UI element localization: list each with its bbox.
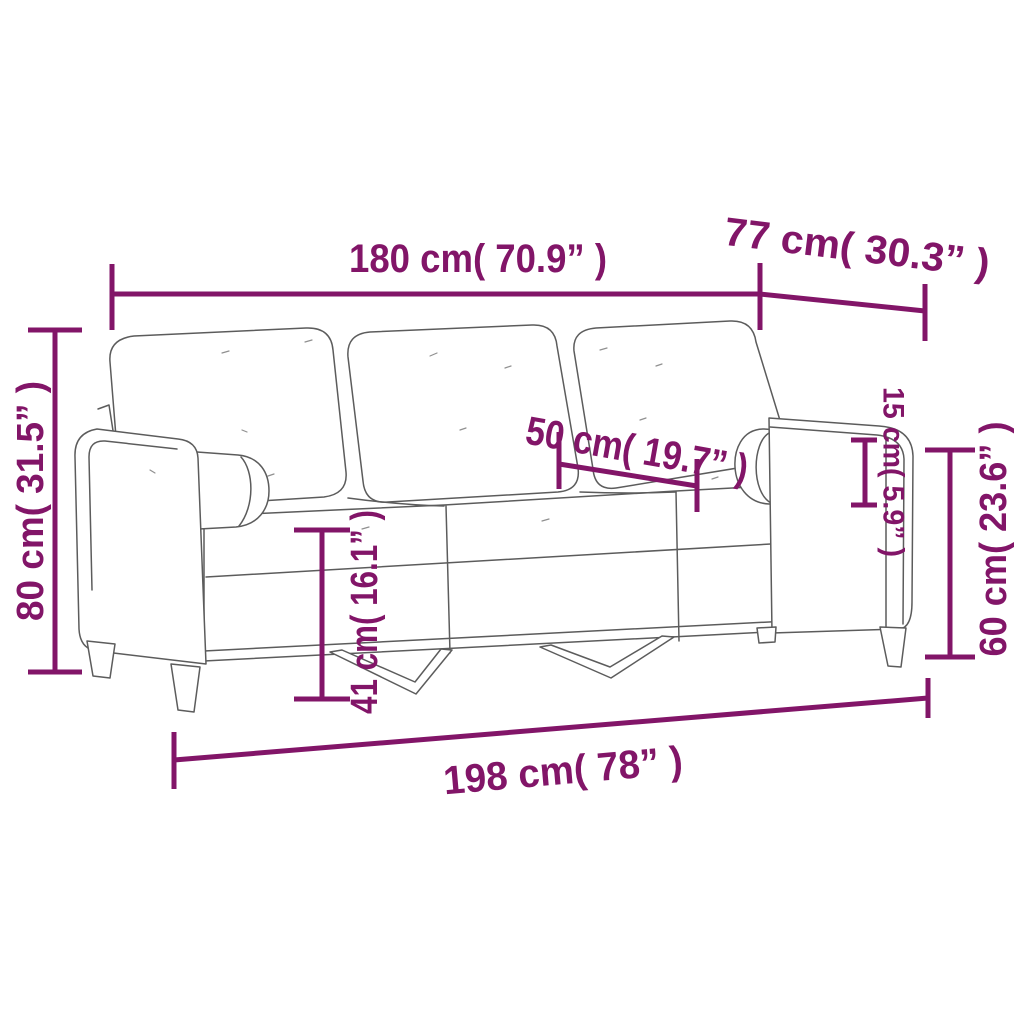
front-left-leg	[87, 641, 115, 678]
dimension-arm-height	[925, 450, 975, 657]
label-sofa-width: 180 cm( 70.9” )	[349, 237, 607, 281]
label-bolster-height: 15 cm( 5.9” )	[877, 387, 910, 557]
label-total-width: 198 cm( 78” )	[442, 739, 685, 804]
label-arm-height: 60 cm( 23.6” )	[973, 422, 1015, 657]
sofa-dimension-diagram: 180 cm( 70.9” ) 77 cm( 30.3” ) 80 cm( 31…	[0, 0, 1024, 1024]
seat-top-curve-right	[580, 492, 676, 493]
bolster-cushion-left	[197, 452, 269, 529]
seat-base	[204, 485, 788, 661]
front-right-leg	[880, 627, 906, 667]
left-arm-leg	[171, 664, 200, 712]
back-right-leg	[757, 627, 776, 643]
label-back-height: 80 cm( 31.5” )	[10, 381, 52, 621]
diagram-canvas: 180 cm( 70.9” ) 77 cm( 30.3” ) 80 cm( 31…	[0, 0, 1024, 1024]
dimension-sofa-depth	[760, 284, 925, 341]
sofa-illustration	[75, 321, 913, 712]
armrest-left	[75, 429, 206, 664]
label-seat-height: 41 cm( 16.1” )	[344, 510, 386, 714]
